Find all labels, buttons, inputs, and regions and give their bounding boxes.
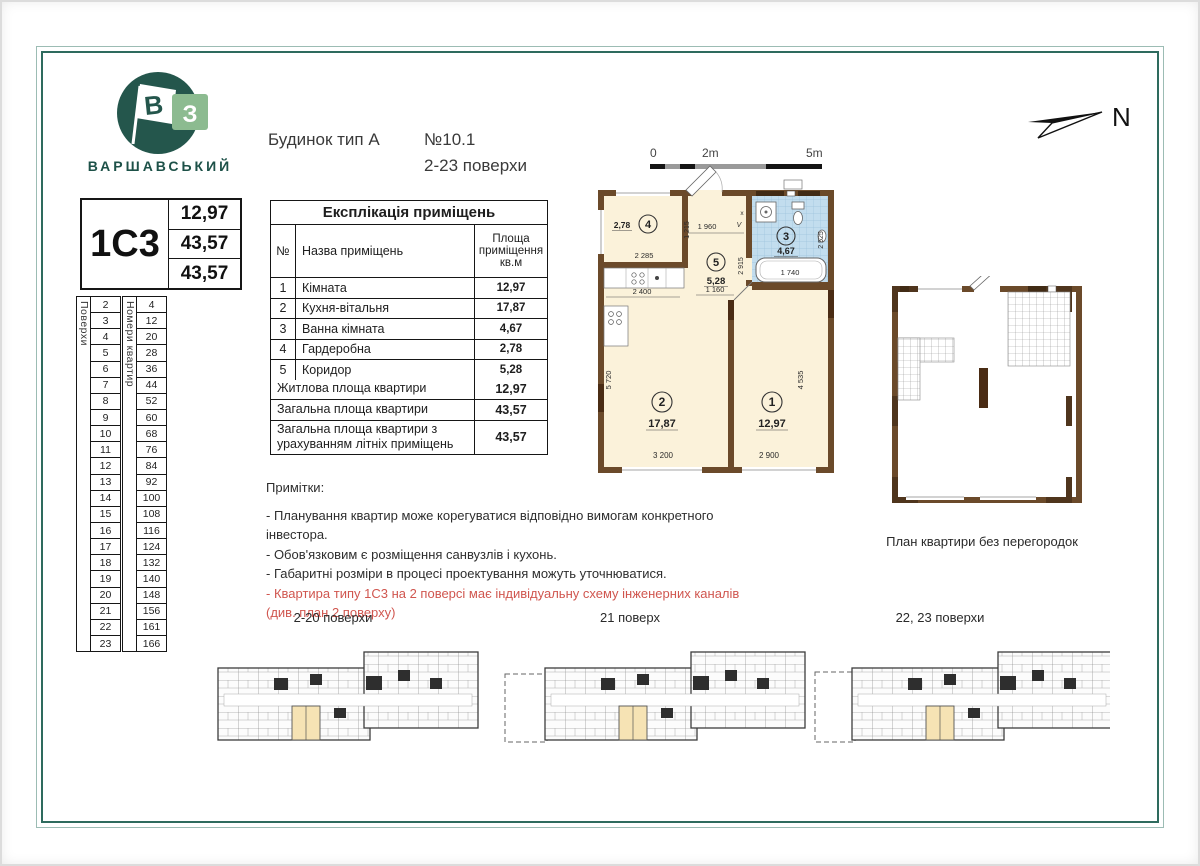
floor-number: 5: [91, 344, 120, 360]
apartment-number: 148: [137, 587, 166, 603]
north-arrow-icon: N: [1022, 94, 1134, 146]
floor-number: 7: [91, 377, 120, 393]
room-name: Кімната: [296, 278, 475, 298]
room-5-number: 5: [713, 257, 719, 269]
apartment-cells: 4122028364452606876849210010811612413214…: [137, 297, 166, 651]
hatch-zone-left-v: [898, 338, 920, 400]
room-area: 5,28: [475, 360, 547, 380]
building-plan-21: [545, 652, 805, 740]
toilet-icon: [794, 212, 803, 225]
apartment-number: 68: [137, 425, 166, 441]
building-plan-label-1: 2-20 поверхи: [233, 610, 433, 625]
room-no: 2: [271, 299, 296, 319]
room-area: 2,78: [475, 340, 547, 360]
floor-number: 18: [91, 554, 120, 570]
summary-value: 43,57: [475, 400, 547, 420]
dim-2915: 2 915: [738, 257, 745, 275]
kitchen-counter: [604, 268, 684, 288]
floor-number: 14: [91, 490, 120, 506]
apartment-number: 44: [137, 377, 166, 393]
notes-items: - Планування квартир може корегуватися в…: [266, 506, 744, 584]
explication-row: 1 Кімната 12,97: [271, 278, 547, 299]
explication-rows: 1 Кімната 12,97 2 Кухня-вітальня 17,87 3…: [271, 278, 547, 380]
stove-unit: [604, 306, 628, 346]
room-name: Гардеробна: [296, 340, 475, 360]
explication-row: 2 Кухня-вітальня 17,87: [271, 299, 547, 320]
apartment-number: 76: [137, 441, 166, 457]
sink-icon: [655, 276, 659, 280]
building-plan-label-2: 21 поверх: [530, 610, 730, 625]
terrace-dashed-21: [505, 674, 547, 742]
apartment-number: 132: [137, 554, 166, 570]
floor-number: 4: [91, 328, 120, 344]
type-card: 1С3 12,97 43,57 43,57: [80, 198, 242, 290]
explication-row: 4 Гардеробна 2,78: [271, 340, 547, 361]
apartment-number: 52: [137, 393, 166, 409]
room-name: Коридор: [296, 360, 475, 380]
notes-section: Примітки: - Планування квартир може коре…: [266, 478, 744, 623]
apartment-number: 108: [137, 506, 166, 522]
square-letter: З: [182, 101, 197, 128]
apartment-number: 161: [137, 619, 166, 635]
floor-number: 22: [91, 619, 120, 635]
room-name: Кухня-вітальня: [296, 299, 475, 319]
dim-2400: 2 400: [633, 287, 652, 296]
type-card-living-area: 12,97: [169, 200, 240, 229]
building-plan-2-20: [218, 652, 478, 740]
note-item: - Обов'язковим є розміщення санвузлів і …: [266, 545, 744, 565]
floor-number: 11: [91, 441, 120, 457]
apartment-number: 60: [137, 409, 166, 425]
apartment-number: 156: [137, 603, 166, 619]
dim-2285: 2 285: [635, 251, 654, 260]
dim-1960: 1 960: [698, 222, 717, 231]
apartments-column-label: Номери квартир: [123, 297, 137, 651]
room-5-area: 5,28: [707, 276, 726, 287]
room-area: 4,67: [475, 319, 547, 339]
room-area: 17,87: [475, 299, 547, 319]
flag-letter: В: [143, 89, 165, 121]
room-no: 5: [271, 360, 296, 380]
explication-summary: Житлова площа квартири 12,97 Загальна пл…: [271, 380, 547, 454]
dim-2525: 2 525: [818, 231, 825, 249]
room-1-number: 1: [769, 395, 776, 409]
developer-logo: В З: [100, 68, 224, 158]
type-card-total-area: 43,57: [169, 229, 240, 259]
room-4-area: 2,78: [614, 220, 631, 230]
summary-label: Загальна площа квартири: [271, 400, 475, 420]
col-area: Площа приміщення кв.м: [475, 225, 547, 277]
note-warning-line1: - Квартира типу 1С3 на 2 поверсі має інд…: [266, 584, 744, 604]
note-item: - Габаритні розміри в процесі проектуван…: [266, 564, 744, 584]
apartment-number: 28: [137, 344, 166, 360]
building-plans-strip: [190, 636, 1110, 768]
room-4-number: 4: [645, 219, 652, 231]
dim-3200: 3 200: [653, 451, 674, 460]
explication-row: 3 Ванна кімната 4,67: [271, 319, 547, 340]
room-3-area: 4,67: [777, 246, 795, 256]
floor-number: 15: [91, 506, 120, 522]
room-area: 12,97: [475, 278, 547, 298]
brand-name: ВАРШАВСЬКИЙ: [78, 158, 242, 174]
col-no: №: [271, 225, 296, 277]
explication-row: 5 Коридор 5,28: [271, 360, 547, 380]
dim-5720: 5 720: [604, 371, 613, 390]
summary-value: 43,57: [475, 421, 547, 454]
building-plan-label-3: 22, 23 поверхи: [840, 610, 1040, 625]
floors-range: 2-23 поверхи: [424, 156, 527, 176]
summary-row: Житлова площа квартири 12,97: [271, 380, 547, 401]
floor-number: 9: [91, 409, 120, 425]
room-2-area: 17,87: [648, 418, 676, 430]
room-no: 4: [271, 340, 296, 360]
room-3-number: 3: [783, 231, 789, 243]
floor-number: 17: [91, 538, 120, 554]
explication-title: Експлікація приміщень: [271, 201, 547, 225]
type-code: 1С3: [82, 200, 169, 288]
floors-cells: 234567891011121314151617181920212223: [91, 297, 120, 651]
floors-column: Поверхи 23456789101112131415161718192021…: [76, 296, 121, 652]
dim-1740: 1 740: [781, 268, 800, 277]
floor-number: 19: [91, 570, 120, 586]
terrace-dashed-22-23: [815, 672, 855, 742]
summary-row: Загальна площа квартири з урахуванням лі…: [271, 421, 547, 454]
apartment-number: 4: [137, 297, 166, 312]
hatch-zone-right: [1008, 292, 1070, 366]
north-label: N: [1112, 102, 1131, 132]
explication-header: № Назва приміщень Площа приміщення кв.м: [271, 225, 547, 278]
floor-number: 8: [91, 393, 120, 409]
apartment-number: 12: [137, 312, 166, 328]
building-plan-22-23: [852, 652, 1110, 740]
apartment-number: 166: [137, 635, 166, 651]
room-name: Ванна кімната: [296, 319, 475, 339]
apartment-number: 100: [137, 490, 166, 506]
notes-title: Примітки:: [266, 478, 744, 498]
apartment-number: 116: [137, 522, 166, 538]
floor-number: 2: [91, 297, 120, 312]
floor-number: 21: [91, 603, 120, 619]
note-item: - Планування квартир може корегуватися в…: [266, 506, 744, 545]
rooms-partition: [728, 300, 734, 473]
room-1-area: 12,97: [758, 418, 786, 430]
floor-number: 10: [91, 425, 120, 441]
type-card-total-area-summer: 43,57: [169, 258, 240, 288]
room-2-number: 2: [659, 395, 666, 409]
apartment-number: 92: [137, 474, 166, 490]
floor-number: 3: [91, 312, 120, 328]
col-name: Назва приміщень: [296, 225, 475, 277]
dim-4535: 4 535: [796, 371, 805, 390]
unit-floor-plan: 1 960 1 215 2 285 2 400 2 915 1 160 2 52…: [596, 154, 842, 480]
floor-number: 20: [91, 587, 120, 603]
room-no: 1: [271, 278, 296, 298]
floor-number: 12: [91, 457, 120, 473]
summary-label: Житлова площа квартири: [271, 380, 475, 400]
apartment-number: 84: [137, 457, 166, 473]
floor-number: 13: [91, 474, 120, 490]
explication-table: Експлікація приміщень № Назва приміщень …: [270, 200, 548, 455]
apartment-number: 20: [137, 328, 166, 344]
summary-label: Загальна площа квартири з урахуванням лі…: [271, 421, 475, 454]
building-type: Будинок тип А: [268, 130, 380, 150]
apartment-number: 36: [137, 361, 166, 377]
floor-number: 6: [91, 361, 120, 377]
dim-1215: 1 215: [684, 221, 691, 239]
pillar: [979, 368, 988, 408]
summary-value: 12,97: [475, 380, 547, 400]
plan-sheet: В З ВАРШАВСЬКИЙ Будинок тип А №10.1 2-23…: [0, 0, 1200, 866]
apartment-number: 140: [137, 570, 166, 586]
room-no: 3: [271, 319, 296, 339]
floors-column-label: Поверхи: [77, 297, 91, 651]
apartment-numbers-column: Номери квартир 4122028364452606876849210…: [122, 296, 167, 652]
summary-row: Загальна площа квартири 43,57: [271, 400, 547, 421]
open-plan-caption: План квартири без перегородок: [870, 534, 1094, 549]
apartment-number: №10.1: [424, 130, 475, 150]
dim-2900: 2 900: [759, 451, 780, 460]
floor-number: 23: [91, 635, 120, 651]
apartment-number: 124: [137, 538, 166, 554]
open-plan: [882, 276, 1082, 514]
floor-number: 16: [91, 522, 120, 538]
